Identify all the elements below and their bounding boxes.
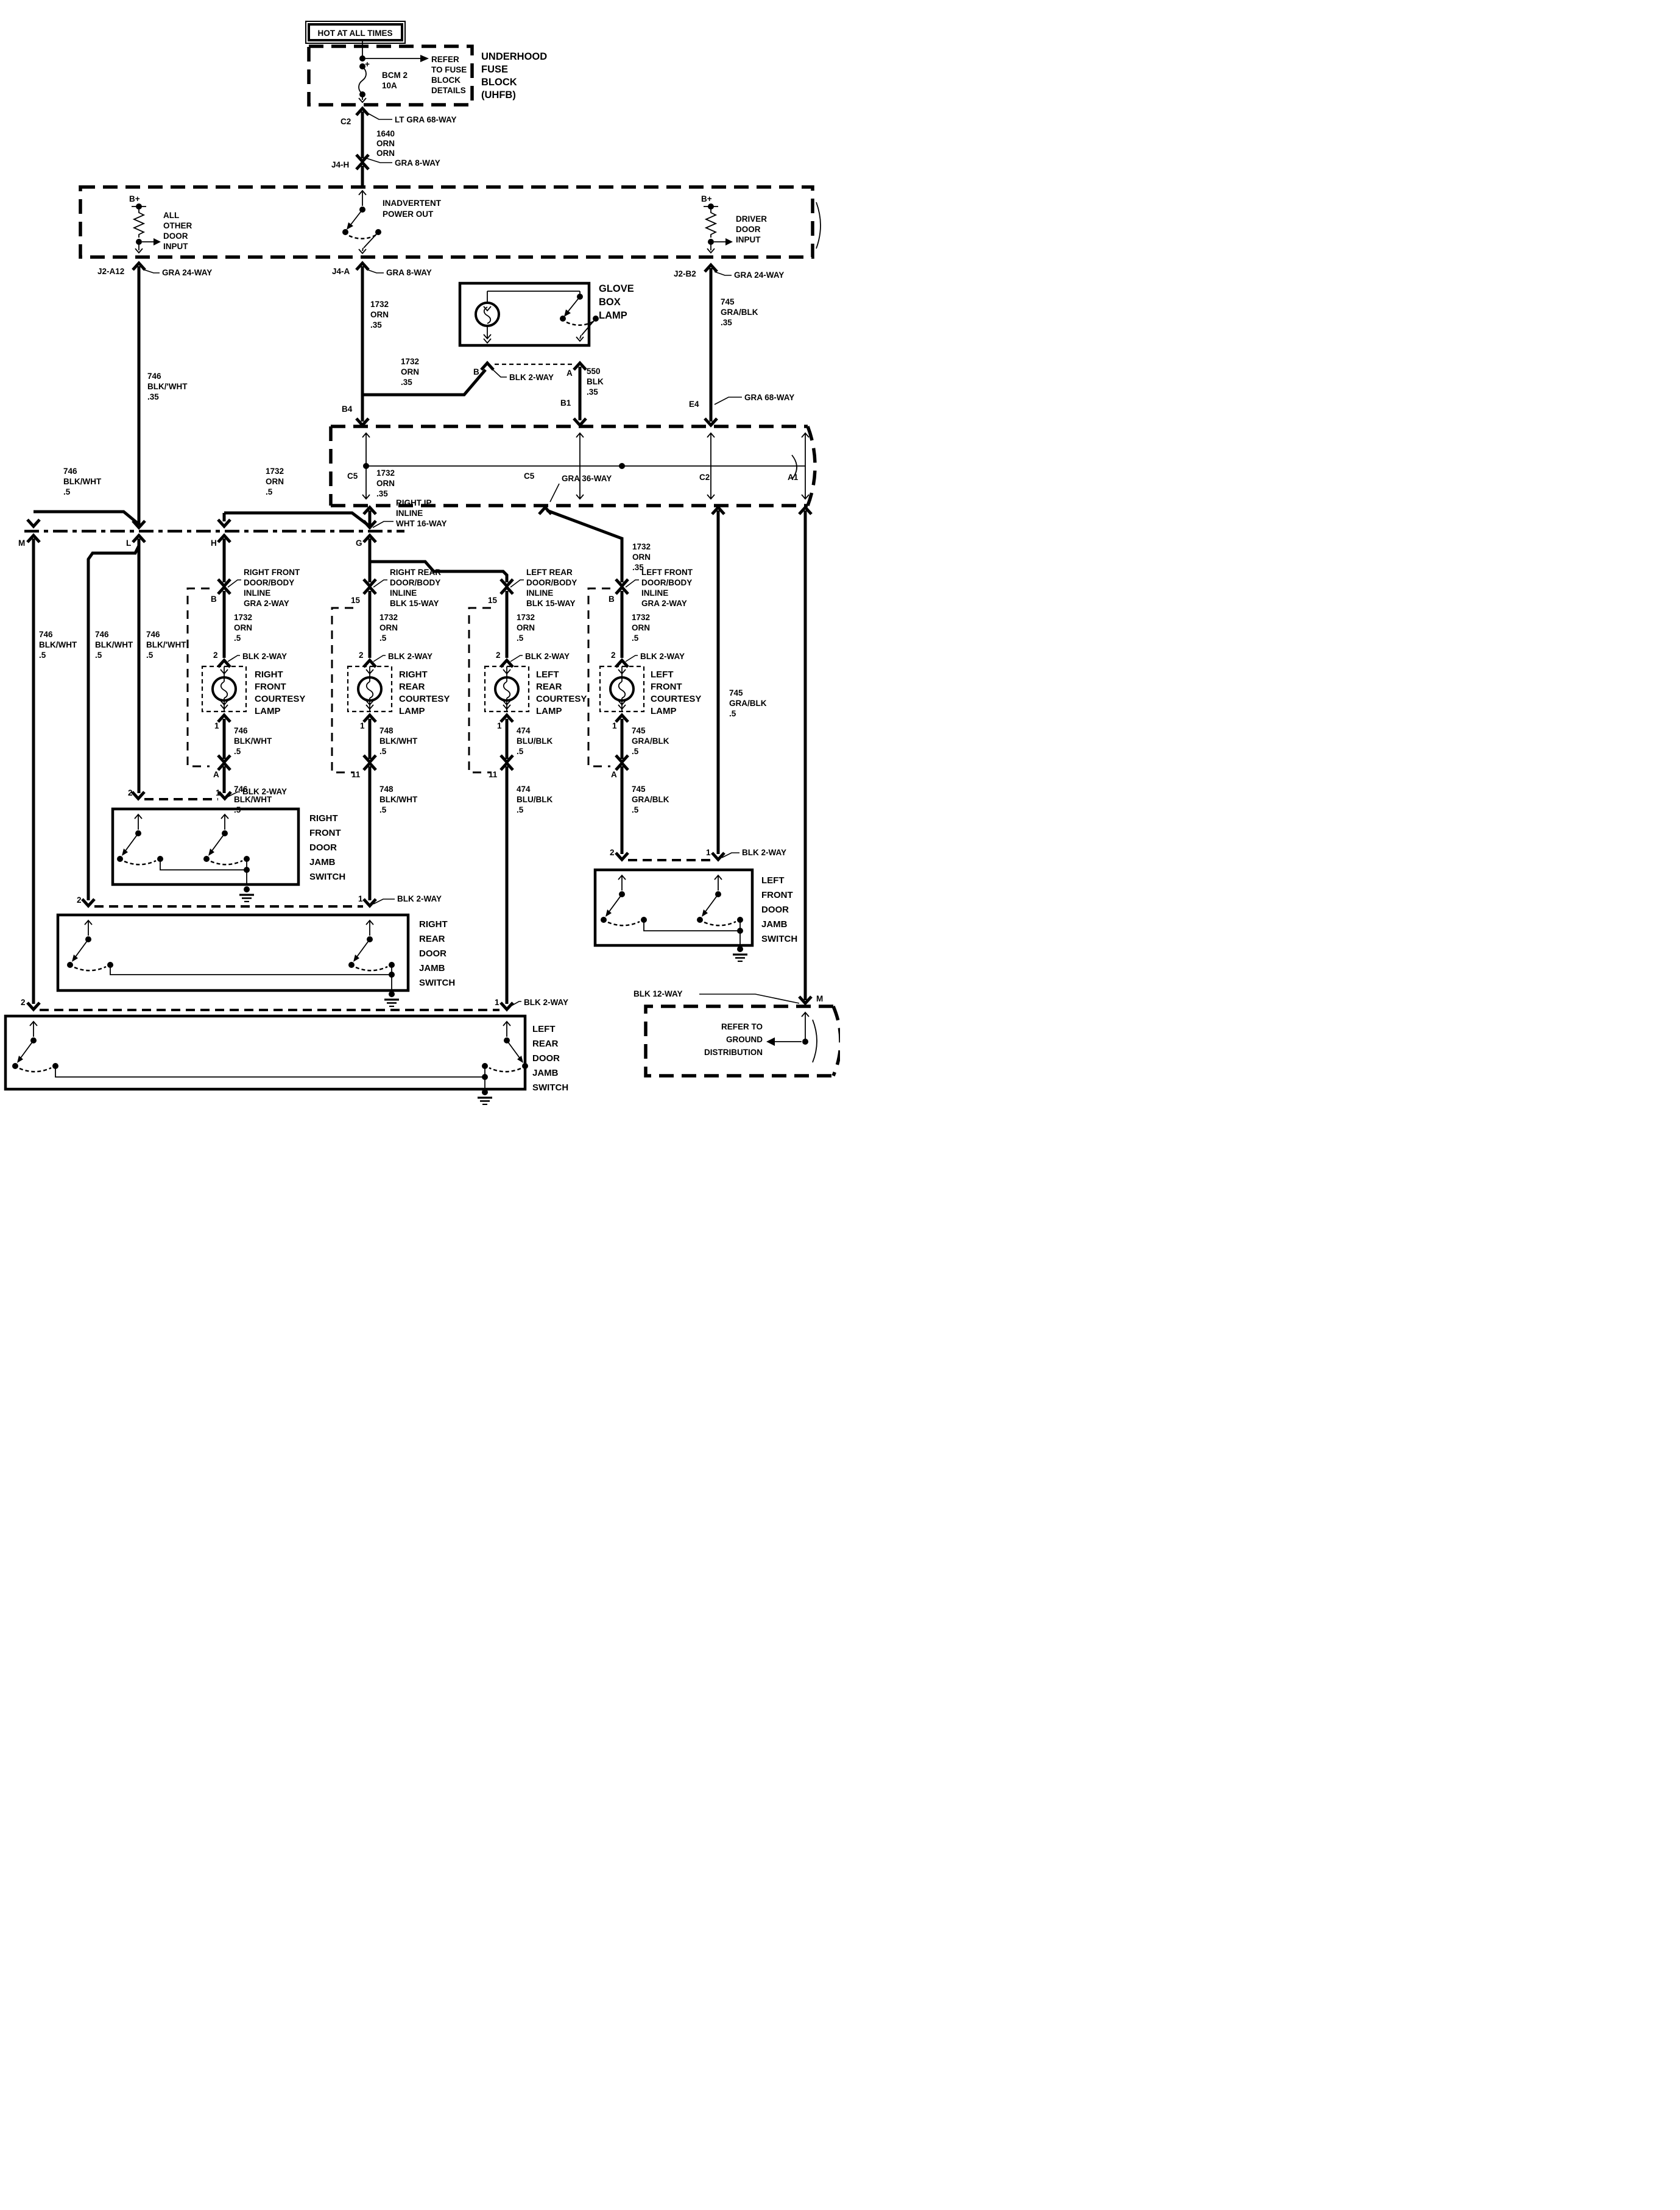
rr-inline-label: RIGHT REARDOOR/BODYINLINEBLK 15-WAY bbox=[390, 568, 441, 608]
rr-pin1: 1 bbox=[360, 721, 365, 730]
branch-1732-label: 1732ORN.5 bbox=[266, 467, 284, 496]
lr-sw-pin2: 2 bbox=[21, 998, 26, 1007]
pin-j2b2: J2-B2 bbox=[674, 269, 696, 278]
lf-ret1-label: 745GRA/BLK.5 bbox=[632, 726, 669, 756]
rf-feed-label: 1732ORN.5 bbox=[234, 613, 252, 643]
lr-lamp-bulb bbox=[495, 666, 518, 711]
glove-pin-b: B bbox=[473, 367, 479, 376]
conn-gra8-mid: GRA 8-WAY bbox=[386, 268, 432, 277]
lr-conn2: BLK 2-WAY bbox=[525, 652, 570, 661]
rf-inline-label: RIGHT FRONTDOOR/BODYINLINEGRA 2-WAY bbox=[244, 568, 300, 608]
conn-gra-8-top: GRA 8-WAY bbox=[395, 158, 440, 168]
lr-lamp-name: LEFTREARCOURTESYLAMP bbox=[536, 669, 587, 716]
lf-sw-conn: BLK 2-WAY bbox=[742, 848, 786, 857]
wire-746-rr-label: 746BLK/WHT.5 bbox=[95, 630, 133, 660]
ground-pin-m: M bbox=[816, 994, 823, 1003]
rf-sw-conn: BLK 2-WAY bbox=[242, 787, 287, 796]
right-front-door-jamb-switch: 2 1 BLK 2-WAY RIGHTFRONTDOORJAMBSWITCH bbox=[113, 787, 345, 902]
746-trunks: 746BLK/WHT.5 746BLK/WHT.5 746BLK/'WHT.5 bbox=[34, 538, 186, 1004]
conn-gra-36: GRA 36-WAY bbox=[562, 474, 612, 483]
inadvertent-power-out: INADVERTENTPOWER OUT bbox=[383, 199, 442, 219]
rr-conn2: BLK 2-WAY bbox=[388, 652, 432, 661]
ground-distribution: BLK 12-WAY M REFER TOGROUNDDISTRIBUTION bbox=[634, 989, 840, 1076]
bcm-box: B+ ALLOTHERDOORINPUT INADVERTENTPOWER OU… bbox=[80, 187, 821, 257]
rr-sw-pin2: 2 bbox=[77, 895, 82, 905]
wire-1732-glove-branch bbox=[362, 370, 485, 395]
lr-sw-conn: BLK 2-WAY bbox=[524, 998, 568, 1007]
hot-at-all-times-box: HOT AT ALL TIMES bbox=[306, 21, 405, 43]
lf-sw-pin2: 2 bbox=[610, 848, 615, 857]
lf-lamp-name: LEFTFRONTCOURTESYLAMP bbox=[651, 669, 701, 716]
glove-conn-blk2: BLK 2-WAY bbox=[509, 373, 554, 382]
rf-sw-pin1: 1 bbox=[216, 788, 221, 797]
band-continuation-curl bbox=[808, 426, 815, 506]
ip-inline-label: RIGHT IPINLINEWHT 16-WAY bbox=[396, 498, 447, 528]
uhfb-title: UNDERHOODFUSEBLOCK(UHFB) bbox=[481, 51, 547, 101]
pin-l: L bbox=[126, 538, 131, 548]
rf-conn2: BLK 2-WAY bbox=[242, 652, 287, 661]
body-harness-band: E4 GRA 68-WAY C5 C5 GRA 36-WAY C2 A1 bbox=[331, 393, 815, 514]
lf-feed-label: 1732ORN.5 bbox=[632, 613, 650, 643]
all-other-door-input: ALLOTHERDOORINPUT bbox=[163, 211, 192, 251]
right-rear-door-jamb-switch: 2 1 BLK 2-WAY RIGHTREARDOORJAMBSWITCH bbox=[58, 894, 455, 1006]
rr-ground bbox=[384, 991, 399, 1006]
rr-switch-name: RIGHTREARDOORJAMBSWITCH bbox=[419, 919, 455, 988]
lf-inline-label: LEFT FRONTDOOR/BODYINLINEGRA 2-WAY bbox=[641, 568, 693, 608]
rr-ret2-label: 748BLK/WHT.5 bbox=[379, 785, 418, 814]
fuse-note-arrow bbox=[420, 55, 429, 62]
glove-pin-a: A bbox=[566, 369, 573, 378]
pin-g: G bbox=[356, 538, 362, 548]
rr-pin2: 2 bbox=[359, 651, 364, 660]
wire-1640-orn: 1640ORNORN bbox=[376, 129, 395, 158]
lf-switch-name: LEFTFRONTDOORJAMBSWITCH bbox=[761, 875, 797, 944]
pin-h: H bbox=[211, 538, 217, 548]
rr-pin-11: 11 bbox=[351, 770, 361, 779]
pin-b1: B1 bbox=[560, 398, 571, 408]
conn-gra24-right: GRA 24-WAY bbox=[734, 270, 784, 280]
pin-j2a12: J2-A12 bbox=[97, 267, 124, 276]
lr-pin2: 2 bbox=[496, 651, 501, 660]
rf-switch-name: RIGHTFRONTDOORJAMBSWITCH bbox=[309, 813, 345, 882]
wire-c5-left-label: 1732ORN.35 bbox=[376, 468, 395, 498]
all-other-door-arrow bbox=[154, 238, 161, 245]
pin-c5-left: C5 bbox=[347, 471, 358, 481]
driver-door-arrow bbox=[725, 238, 733, 245]
rf-pin-b: B bbox=[211, 595, 217, 604]
wire-1732-h-branch bbox=[224, 513, 367, 524]
lr-feed-label: 1732ORN.5 bbox=[517, 613, 535, 643]
lr-ground bbox=[478, 1089, 492, 1104]
left-rear-door-jamb-switch: 2 1 BLK 2-WAY LEFTREARDOORJAMBSWITCH bbox=[5, 998, 568, 1104]
rr-lamp-bulb bbox=[358, 666, 381, 711]
wire-746-35-label: 746BLK/'WHT.35 bbox=[147, 372, 188, 401]
lr-pin-15: 15 bbox=[488, 596, 498, 605]
wire-1732-branch-label: 1732ORN.35 bbox=[401, 357, 419, 387]
underhood-fuse-block: REFERTO FUSEBLOCKDETAILS + BCM 210A bbox=[309, 41, 472, 105]
rr-lamp-name: RIGHTREARCOURTESYLAMP bbox=[399, 669, 450, 716]
rf-ret1-label: 746BLK/WHT.5 bbox=[234, 726, 272, 756]
rf-lamp-bulb bbox=[213, 666, 236, 711]
fuse-name: BCM 210A bbox=[382, 71, 408, 90]
left-front-lamp-column: LEFT FRONTDOOR/BODYINLINEGRA 2-WAY B 173… bbox=[588, 568, 701, 854]
ground-note: REFER TOGROUNDDISTRIBUTION bbox=[704, 1022, 763, 1057]
conn-lt-gra-68: LT GRA 68-WAY bbox=[395, 115, 457, 124]
pin-m: M bbox=[18, 538, 25, 548]
lf-conn2: BLK 2-WAY bbox=[640, 652, 685, 661]
ground-dist-arrow bbox=[766, 1037, 775, 1046]
conn-blk-12: BLK 12-WAY bbox=[634, 989, 683, 998]
pin-j4a: J4-A bbox=[332, 267, 350, 276]
hot-label: HOT AT ALL TIMES bbox=[318, 29, 393, 38]
pin-b4: B4 bbox=[342, 404, 353, 414]
wire-550-label: 550BLK.35 bbox=[587, 367, 604, 397]
pin-c2-exit: C2 bbox=[699, 473, 710, 482]
lf-sw-pin1: 1 bbox=[706, 848, 711, 857]
pin-c5-right: C5 bbox=[524, 471, 535, 481]
lf-pin-a: A bbox=[611, 770, 617, 779]
rf-ground bbox=[239, 886, 254, 902]
pin-j4h: J4-H bbox=[331, 160, 349, 169]
lr-ret2-label: 474BLU/BLK.5 bbox=[517, 785, 552, 814]
wire-746-m-branch bbox=[34, 512, 138, 523]
bcm-feed-wire: C2 LT GRA 68-WAY 1640ORNORN J4-H GRA 8-W… bbox=[331, 108, 457, 186]
resistor-right bbox=[706, 211, 716, 238]
right-front-lamp-column: RIGHT FRONTDOOR/BODYINLINEGRA 2-WAY B 17… bbox=[188, 538, 305, 814]
rf-sw-pin2: 2 bbox=[128, 788, 133, 797]
lf-ground bbox=[733, 946, 747, 961]
rf-pin2: 2 bbox=[213, 651, 218, 660]
bcm-continuation-curl bbox=[816, 202, 821, 249]
conn-gra-68: GRA 68-WAY bbox=[744, 393, 794, 402]
left-front-door-jamb-switch: 2 1 BLK 2-WAY LEFTFRONTDOORJAMBSWITCH bbox=[595, 848, 797, 961]
lr-inline-label: LEFT REARDOOR/BODYINLINEBLK 15-WAY bbox=[526, 568, 577, 608]
fuse-plus: + bbox=[365, 60, 370, 69]
lr-ret1-label: 474BLU/BLK.5 bbox=[517, 726, 552, 756]
rf-pin1: 1 bbox=[214, 721, 219, 730]
driver-door-input: DRIVERDOORINPUT bbox=[736, 214, 767, 244]
fuse-symbol bbox=[359, 67, 366, 94]
ground-box-curl bbox=[833, 1006, 840, 1076]
resistor-left bbox=[134, 211, 144, 238]
lr-switch-name: LEFTREARDOORJAMBSWITCH bbox=[532, 1024, 568, 1093]
left-rear-lamp-column: LEFT REARDOOR/BODYINLINEBLK 15-WAY 15 17… bbox=[469, 568, 587, 1004]
rr-pin-15: 15 bbox=[351, 596, 361, 605]
b-plus-right: B+ bbox=[701, 194, 712, 203]
glove-box-lamp: GLOVEBOXLAMP B A BLK 2-WAY 1732ORN.35 55… bbox=[362, 283, 634, 420]
glove-lamp-bulb bbox=[476, 303, 499, 326]
wire-745-c2-label: 745GRA/BLK.5 bbox=[729, 688, 767, 718]
rr-ret1-label: 748BLK/WHT.5 bbox=[379, 726, 418, 756]
rr-feed-label: 1732ORN.5 bbox=[379, 613, 398, 643]
wiring-diagram: HOT AT ALL TIMES REFERTO FUSEBLOCKDETAIL… bbox=[0, 0, 840, 1105]
glove-switch-arrow bbox=[564, 309, 571, 317]
wiring-diagram-page: HOT AT ALL TIMES REFERTO FUSEBLOCKDETAIL… bbox=[0, 0, 840, 1105]
lf-lamp-bulb bbox=[610, 666, 634, 711]
pin-e4: E4 bbox=[689, 400, 699, 409]
pin-a1: A1 bbox=[788, 473, 799, 482]
b-plus-left: B+ bbox=[129, 194, 140, 203]
branch-746-label: 746BLK/WHT.5 bbox=[63, 467, 102, 496]
rr-sw-pin1: 1 bbox=[358, 894, 363, 903]
right-rear-lamp-column: RIGHT REARDOOR/BODYINLINEBLK 15-WAY 15 1… bbox=[332, 568, 450, 900]
conn-gra24-left: GRA 24-WAY bbox=[162, 268, 212, 277]
lf-pin-b: B bbox=[609, 595, 615, 604]
rf-pin-a: A bbox=[213, 770, 219, 779]
lr-pin1: 1 bbox=[497, 721, 502, 730]
rf-lamp-name: RIGHTFRONTCOURTESYLAMP bbox=[255, 669, 305, 716]
lf-pin1: 1 bbox=[612, 721, 617, 730]
wire-745-35-label: 745GRA/BLK.35 bbox=[721, 297, 758, 327]
glove-box-lamp-title: GLOVEBOXLAMP bbox=[599, 283, 634, 321]
fuse-note: REFERTO FUSEBLOCKDETAILS bbox=[431, 55, 467, 95]
pin-c2: C2 bbox=[341, 117, 351, 126]
rr-sw-conn: BLK 2-WAY bbox=[397, 894, 442, 903]
lf-pin2: 2 bbox=[611, 651, 616, 660]
lr-pin-11: 11 bbox=[489, 770, 498, 779]
wire-746-rf-label: 746BLK/'WHT.5 bbox=[146, 630, 186, 660]
lr-sw-pin1: 1 bbox=[495, 998, 499, 1007]
wire-1732-35-label: 1732ORN.35 bbox=[370, 300, 389, 330]
wire-746-m-label: 746BLK/WHT.5 bbox=[39, 630, 77, 660]
lf-ret2-label: 745GRA/BLK.5 bbox=[632, 785, 669, 814]
